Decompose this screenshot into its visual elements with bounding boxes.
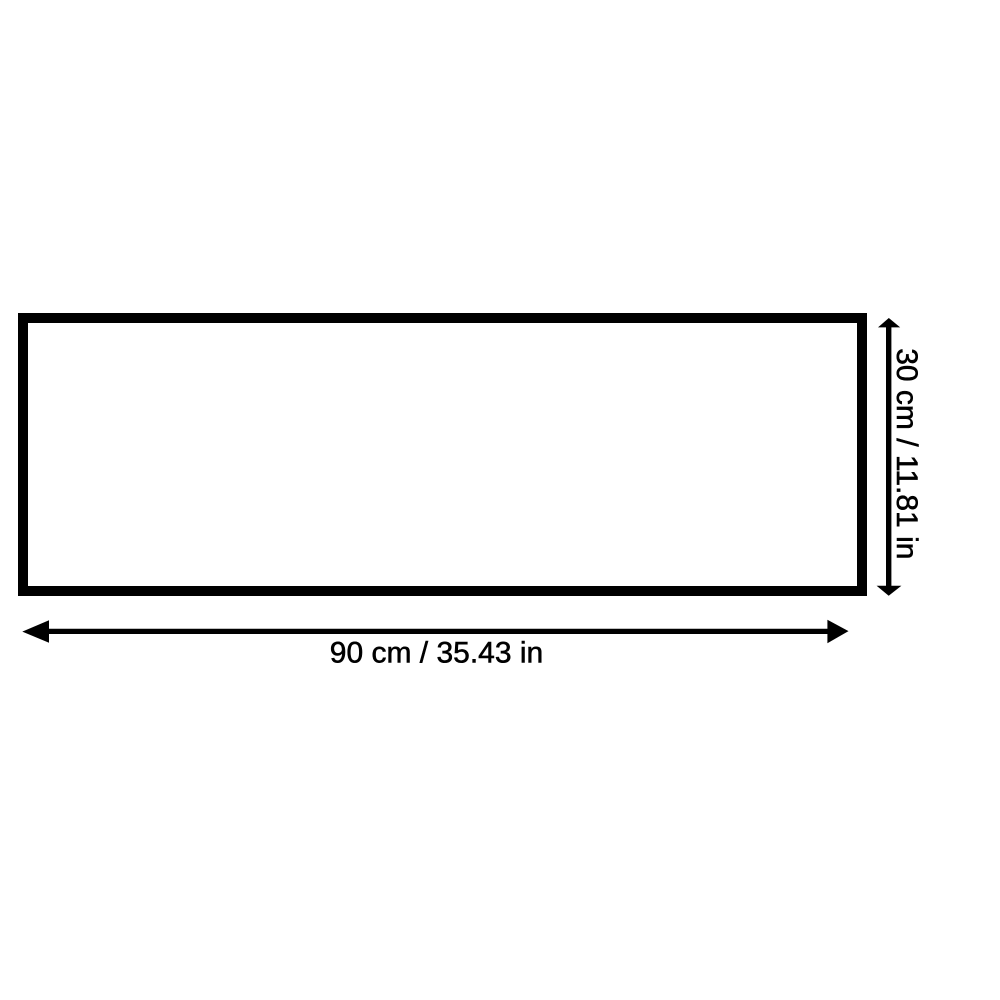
- svg-text:90 cm / 35.43 in: 90 cm / 35.43 in: [330, 637, 543, 670]
- svg-text:30 cm / 11.81 in: 30 cm / 11.81 in: [890, 348, 923, 559]
